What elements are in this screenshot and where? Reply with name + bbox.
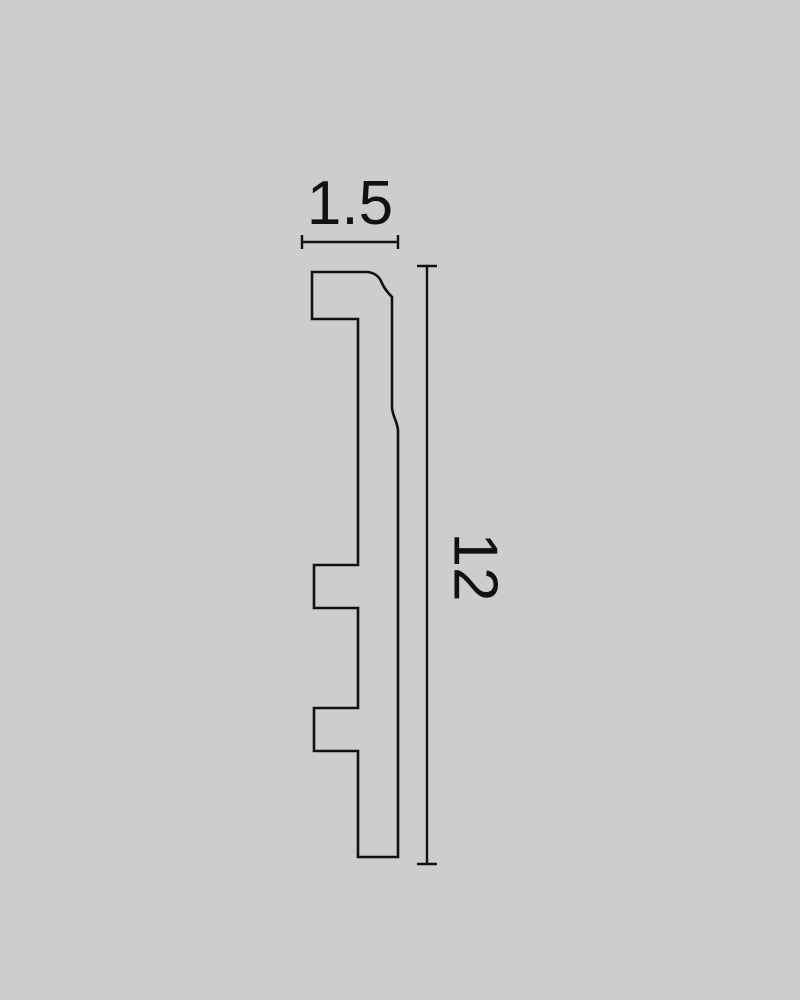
technical-drawing: 1.5 12 bbox=[0, 0, 800, 1000]
width-dimension: 1.5 bbox=[302, 169, 398, 249]
width-dimension-label: 1.5 bbox=[307, 169, 393, 238]
height-dimension: 12 bbox=[417, 266, 509, 864]
height-dimension-label: 12 bbox=[440, 533, 509, 602]
profile-diagram-svg: 1.5 12 bbox=[0, 0, 800, 1000]
moulding-profile-outline bbox=[312, 272, 398, 857]
